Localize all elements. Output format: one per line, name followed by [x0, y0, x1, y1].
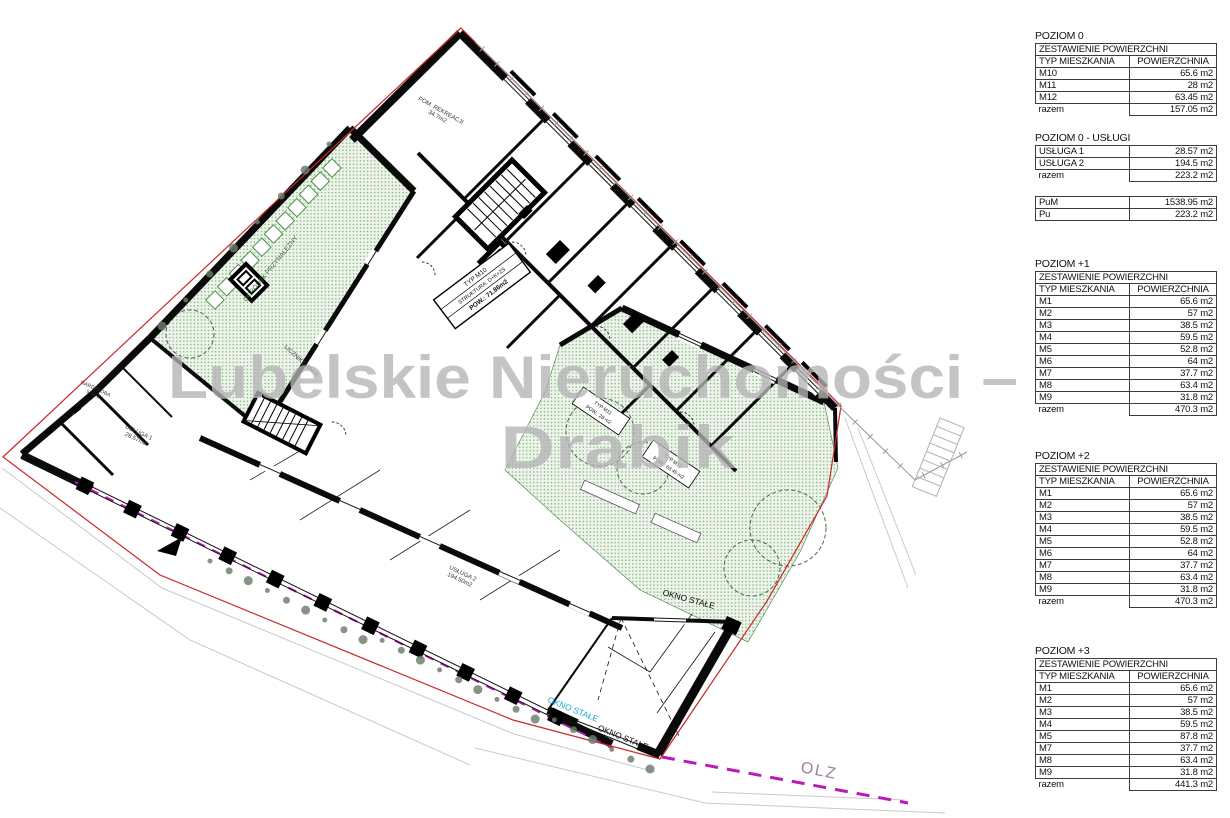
- stair-core-a: [455, 160, 544, 249]
- area-table: ZESTAWIENIE POWIERZCHNITYP MIESZKANIAPOW…: [1035, 271, 1217, 416]
- watermark-line2: Drabik: [501, 414, 737, 481]
- area-table: PuM1538.95 m2Pu223.2 m2: [1035, 196, 1217, 221]
- table-row: M338.5 m2: [1036, 512, 1217, 524]
- pillar: [361, 616, 380, 635]
- table-row: M459.5 m2: [1036, 332, 1217, 344]
- table-row: M737.7 m2: [1036, 560, 1217, 572]
- table-header-row: ZESTAWIENIE POWIERZCHNI: [1036, 464, 1217, 476]
- table-row: PuM1538.95 m2: [1036, 197, 1217, 209]
- table-row: M338.5 m2: [1036, 320, 1217, 332]
- table-row: USŁUGA 128.57 m2: [1036, 146, 1217, 158]
- table-total-row: razem441.3 m2: [1036, 779, 1217, 791]
- table-row: M257 m2: [1036, 308, 1217, 320]
- table-title: POZIOM +3: [1035, 645, 1090, 657]
- table-title: POZIOM 0: [1035, 30, 1084, 42]
- table-row: M459.5 m2: [1036, 524, 1217, 536]
- pillar: [218, 546, 237, 565]
- table-row: M863.4 m2: [1036, 380, 1217, 392]
- table-row: M165.6 m2: [1036, 683, 1217, 695]
- table-header-row: ZESTAWIENIE POWIERZCHNI: [1036, 659, 1217, 671]
- page: { "watermark": { "line1": "Lubelskie Nie…: [0, 0, 1230, 818]
- table-row: M863.4 m2: [1036, 572, 1217, 584]
- area-table: ZESTAWIENIE POWIERZCHNITYP MIESZKANIAPOW…: [1035, 658, 1217, 791]
- table-title: POZIOM +1: [1035, 258, 1090, 270]
- table-columns-row: TYP MIESZKANIAPOWIERZCHNIA: [1036, 284, 1217, 296]
- table-row: M931.8 m2: [1036, 392, 1217, 404]
- table-row: Pu223.2 m2: [1036, 209, 1217, 221]
- table-row: M552.8 m2: [1036, 536, 1217, 548]
- table-columns-row: TYP MIESZKANIAPOWIERZCHNIA: [1036, 476, 1217, 488]
- table-row: M863.4 m2: [1036, 755, 1217, 767]
- table-header-row: ZESTAWIENIE POWIERZCHNI: [1036, 272, 1217, 284]
- pillar: [313, 593, 332, 612]
- pillar: [409, 640, 428, 659]
- table-row: M737.7 m2: [1036, 743, 1217, 755]
- table-row: M257 m2: [1036, 695, 1217, 707]
- table-row: M165.6 m2: [1036, 488, 1217, 500]
- area-table: USŁUGA 128.57 m2USŁUGA 2194.5 m2razem223…: [1035, 145, 1217, 182]
- floor-plan-drawing: TYP M10 STRUKTURA: D+K+2S POW.: 71.86m2 …: [0, 0, 1030, 818]
- table-row: M664 m2: [1036, 356, 1217, 368]
- table-row: M552.8 m2: [1036, 344, 1217, 356]
- pillar: [123, 500, 142, 519]
- area-table: ZESTAWIENIE POWIERZCHNITYP MIESZKANIAPOW…: [1035, 43, 1217, 116]
- table-title: POZIOM +2: [1035, 450, 1090, 462]
- table-row: M931.8 m2: [1036, 584, 1217, 596]
- table-row: USŁUGA 2194.5 m2: [1036, 158, 1217, 170]
- table-header-row: ZESTAWIENIE POWIERZCHNI: [1036, 44, 1217, 56]
- table-total-row: razem470.3 m2: [1036, 404, 1217, 416]
- table-row: M931.8 m2: [1036, 767, 1217, 779]
- olz-line: OLZ: [662, 757, 908, 803]
- colonnade: [21, 453, 613, 748]
- table-total-row: razem157.05 m2: [1036, 104, 1217, 116]
- m10-callout: TYP M10 STRUKTURA: D+K+2S POW.: 71.86m2: [434, 243, 531, 328]
- table-row: M165.6 m2: [1036, 296, 1217, 308]
- area-table: ZESTAWIENIE POWIERZCHNITYP MIESZKANIAPOW…: [1035, 463, 1217, 608]
- table-row: M1128 m2: [1036, 80, 1217, 92]
- table-columns-row: TYP MIESZKANIAPOWIERZCHNIA: [1036, 671, 1217, 683]
- table-row: M737.7 m2: [1036, 368, 1217, 380]
- area-tables-panel: POZIOM 0ZESTAWIENIE POWIERZCHNITYP MIESZ…: [1035, 0, 1225, 818]
- table-columns-row: TYP MIESZKANIAPOWIERZCHNIA: [1036, 56, 1217, 68]
- exterior-stair: [912, 418, 964, 496]
- table-row: M1065.6 m2: [1036, 68, 1217, 80]
- table-row: M459.5 m2: [1036, 719, 1217, 731]
- watermark-line1: Lubelskie Nieruchomości –: [168, 344, 1018, 411]
- table-row: M1263.45 m2: [1036, 92, 1217, 104]
- table-total-row: razem223.2 m2: [1036, 170, 1217, 182]
- pillar: [266, 570, 285, 589]
- table-row: M338.5 m2: [1036, 707, 1217, 719]
- table-row: M587.8 m2: [1036, 731, 1217, 743]
- table-row: M664 m2: [1036, 548, 1217, 560]
- table-title: POZIOM 0 - USŁUGI: [1035, 132, 1130, 144]
- table-total-row: razem470.3 m2: [1036, 596, 1217, 608]
- direction-arrow-icon: [157, 537, 182, 556]
- olz-label: OLZ: [799, 759, 839, 783]
- table-row: M257 m2: [1036, 500, 1217, 512]
